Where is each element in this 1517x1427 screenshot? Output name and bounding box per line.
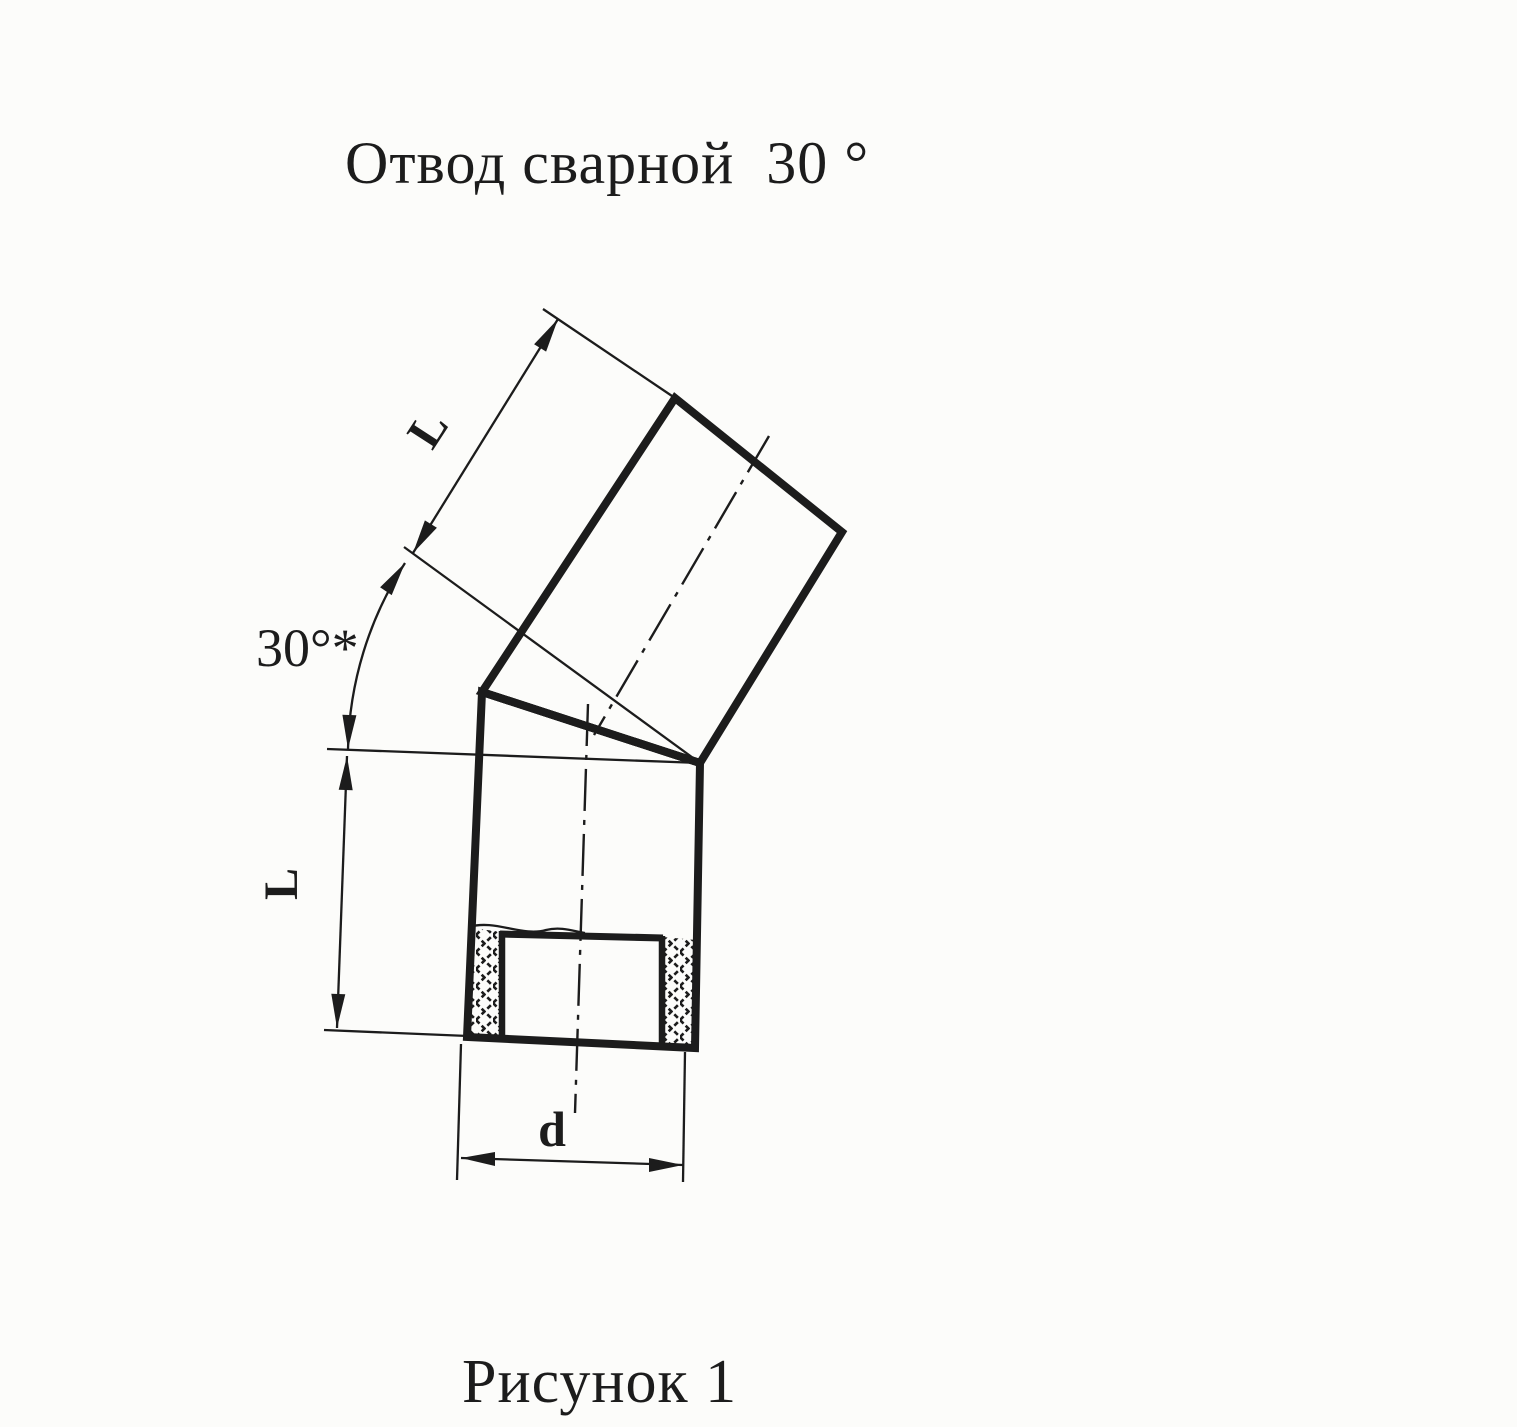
diameter-extension-line-left — [457, 1044, 461, 1180]
lower-length-label: L — [255, 868, 308, 900]
angle-arc-arrow-top — [380, 563, 405, 595]
angle-label: 30°* — [256, 618, 359, 678]
technical-drawing: Отвод сварной 30 ° Рисунок 1 — [0, 0, 1517, 1427]
diameter-label: d — [538, 1101, 566, 1157]
right-wall-section-hatch — [662, 937, 696, 1046]
lower-length-dimension-line — [337, 756, 347, 1028]
lower-length-extension-line — [324, 1030, 468, 1036]
upper-length-label: L — [397, 402, 459, 458]
diameter-arrow-right — [649, 1158, 683, 1172]
upper-length-arrow-top — [534, 319, 558, 352]
angle-arc-arrow-bottom — [342, 715, 356, 749]
drawing-title: Отвод сварной 30 ° — [345, 130, 869, 196]
diameter-extension-line-right — [683, 1052, 685, 1182]
figure-caption: Рисунок 1 — [462, 1348, 737, 1416]
scanned-drawing-page: Отвод сварной 30 ° Рисунок 1 — [0, 0, 1517, 1427]
upper-length-arrow-bottom — [413, 520, 437, 553]
diameter-arrow-left — [461, 1152, 495, 1166]
end-face-extension-line — [543, 309, 675, 398]
